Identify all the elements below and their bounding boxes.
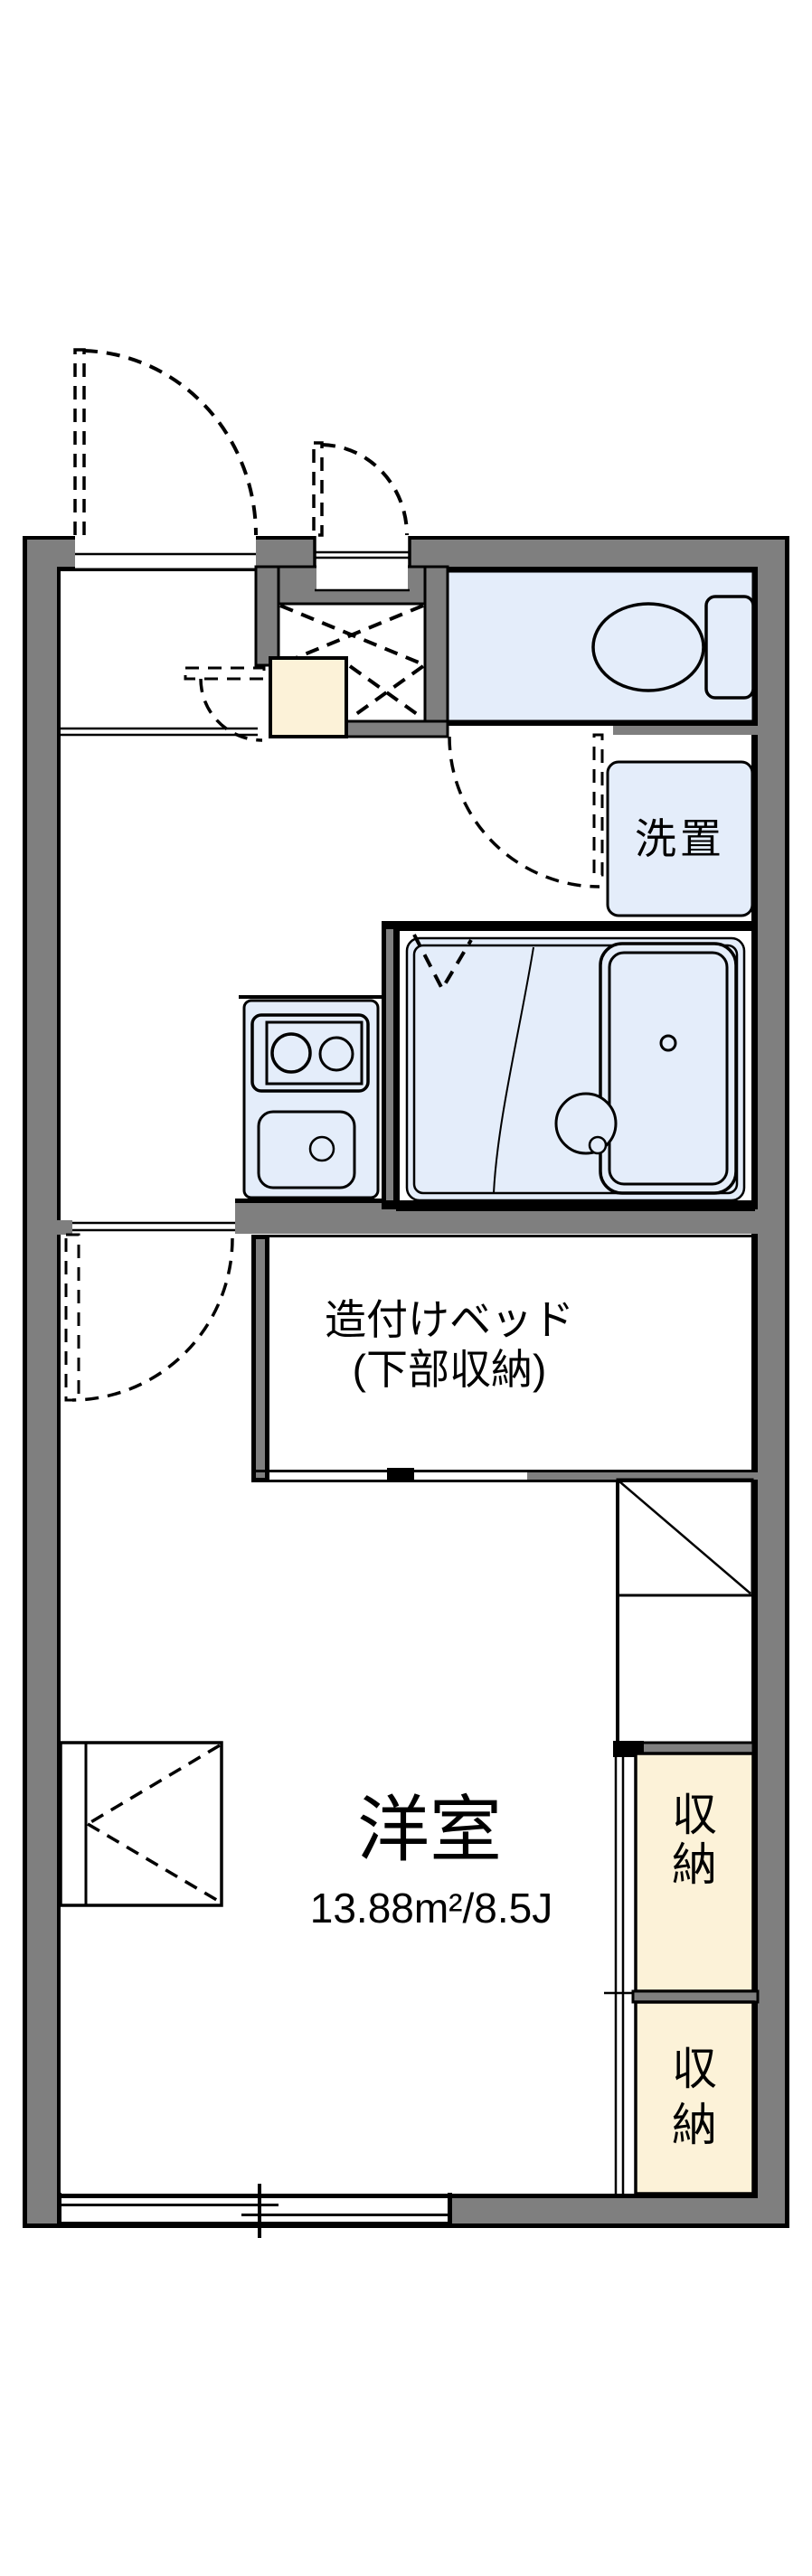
kitchen-unit	[239, 995, 383, 1198]
storage-top-label-1: 収	[672, 1790, 717, 1840]
western-room: 洋室 13.88m²/8.5J	[310, 1790, 552, 1932]
door-arc	[449, 737, 600, 887]
hall-divider-wall	[57, 1220, 235, 1235]
kitchen-counter	[244, 1001, 378, 1198]
laundry-space: 洗置	[608, 762, 752, 916]
laundry-label: 洗置	[635, 815, 725, 862]
door-leaf	[185, 668, 264, 679]
built-in-bed-area: 造付けベッド (下部収納)	[251, 1235, 758, 1482]
window-sash-right	[241, 2214, 449, 2216]
bottom-sliding-window	[57, 2184, 452, 2238]
door-arc	[72, 1238, 232, 1400]
window-sash-left	[61, 2204, 279, 2206]
room-door-swing	[66, 1235, 232, 1400]
window-mullion	[258, 2184, 261, 2238]
storage-bottom-label-2: 納	[672, 2100, 717, 2150]
storage-bottom-label-1: 収	[672, 2044, 717, 2094]
door-arc-small	[322, 445, 407, 535]
door-leaf	[594, 735, 602, 875]
storage-top-label-2: 納	[672, 1839, 717, 1890]
floor-plan-page: 洗置	[0, 0, 812, 2576]
bed-label-line2: (下部収納)	[353, 1346, 547, 1393]
storage-closets: 収 納 収 納	[604, 1741, 758, 2194]
bay-box	[61, 1743, 222, 1905]
bed-label-line1: 造付けベッド	[325, 1296, 574, 1343]
door-leaf-large	[75, 350, 84, 535]
toilet-tank	[706, 597, 753, 698]
genkan-window-opening	[75, 536, 256, 570]
bathtub	[600, 944, 736, 1193]
toilet-room	[448, 571, 758, 735]
tub-drain-knob	[661, 1036, 675, 1050]
refrigerator-diagonal	[619, 1481, 751, 1594]
entry-door-swing-arcs	[75, 350, 407, 535]
room-area-label: 13.88m²/8.5J	[310, 1885, 552, 1932]
genkan-step	[61, 729, 258, 735]
shoe-cabinet	[270, 658, 346, 737]
door-arc	[201, 679, 262, 740]
door-leaf-small	[314, 443, 322, 535]
bathroom	[382, 921, 758, 1209]
door-arc-large	[84, 351, 256, 535]
toilet-bowl	[593, 604, 703, 691]
floor-plan-drawing: 洗置	[0, 0, 812, 2576]
refrigerator-space	[616, 1480, 752, 1743]
storage-bottom-box	[636, 2002, 753, 2194]
toilet-door-swing	[449, 735, 602, 887]
room-name-label: 洋室	[357, 1790, 502, 1870]
door-leaf	[66, 1235, 79, 1400]
toilet-doorway	[449, 726, 612, 735]
toilet-room-bottom-wall	[448, 721, 758, 726]
